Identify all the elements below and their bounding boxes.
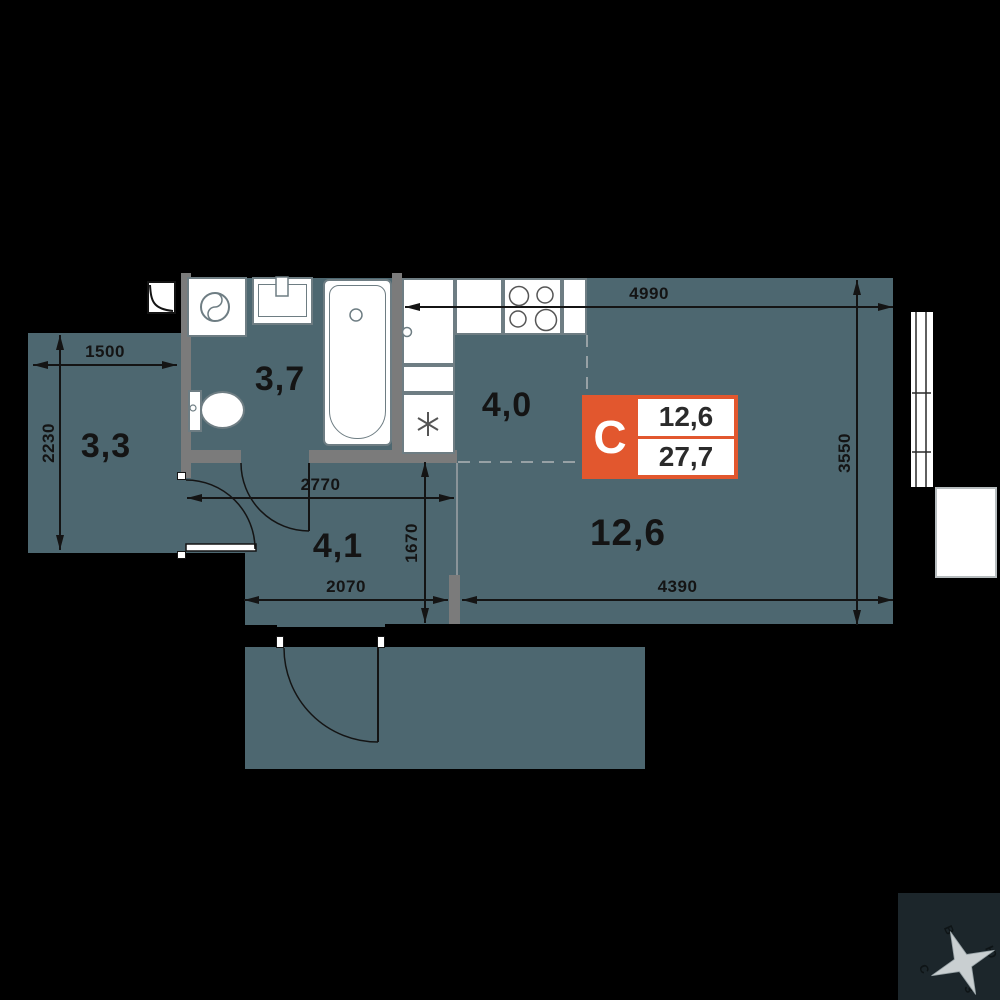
arrow-icon <box>878 303 893 311</box>
arrow-icon <box>462 596 477 604</box>
arrow-icon <box>56 335 64 350</box>
room-label-bathroom: 3,7 <box>240 360 320 399</box>
dim-bottom-left: 2070 <box>244 577 448 597</box>
dim-line-loggia-height <box>59 335 61 550</box>
dim-loggia-height: 2230 <box>39 403 59 483</box>
wall-right-lower <box>893 487 933 647</box>
arrow-icon <box>187 494 202 502</box>
partition-bath-bottom-left <box>181 450 241 463</box>
wall-right-upper <box>893 258 933 312</box>
zone-line-vertical <box>456 463 458 575</box>
badge-values: 12,6 27,7 <box>638 399 734 475</box>
arrow-icon <box>439 494 454 502</box>
partition-bath-kitchen <box>392 273 402 463</box>
arrow-icon <box>878 596 893 604</box>
arrow-icon <box>421 462 429 477</box>
loggia-door-jamb-top <box>177 472 186 480</box>
floor-plan-canvas: 4990 3550 1500 2230 2770 1670 2070 4390 … <box>0 0 1000 1000</box>
toilet-bowl <box>200 391 245 429</box>
arrow-icon <box>853 280 861 295</box>
wall-right-mid <box>893 312 911 487</box>
wall-loggia-top <box>10 315 183 333</box>
wall-top <box>128 258 933 278</box>
balcony-box <box>935 487 997 578</box>
wall-hall-base <box>225 625 277 647</box>
arrow-icon <box>162 361 177 369</box>
kitchen-counter-cell <box>402 365 455 393</box>
wall-bottom <box>385 624 933 647</box>
arrow-icon <box>421 608 429 623</box>
appliance-box <box>402 393 455 454</box>
dim-hall-height: 1670 <box>402 503 422 583</box>
sink-basin <box>258 284 307 317</box>
dim-top: 4990 <box>405 284 893 304</box>
badge-total-area: 27,7 <box>638 439 734 476</box>
arrow-icon <box>853 610 861 625</box>
room-label-hall: 4,1 <box>298 527 378 566</box>
dim-line-bottom-right <box>462 599 893 601</box>
dim-right: 3550 <box>835 413 855 493</box>
loggia-door-jamb-bottom <box>177 551 186 559</box>
wall-loggia-left <box>10 315 28 578</box>
dim-line-top <box>405 306 893 308</box>
dim-line-loggia-width <box>33 364 177 366</box>
badge-type-letter: С <box>586 399 634 475</box>
room-label-loggia: 3,3 <box>66 427 146 466</box>
arrow-icon <box>433 596 448 604</box>
washing-machine-icon <box>187 277 247 337</box>
dim-hall-width: 2770 <box>187 475 454 495</box>
arrow-icon <box>405 303 420 311</box>
dim-line-right <box>856 280 858 625</box>
dim-loggia-width: 1500 <box>33 342 177 362</box>
dim-line-hall-width <box>187 497 454 499</box>
arrow-icon <box>33 361 48 369</box>
kitchen-zone-dashed-horizontal <box>458 461 580 463</box>
entry-door-jamb-left <box>276 636 284 648</box>
arrow-icon <box>244 596 259 604</box>
bathtub-inner <box>329 285 386 439</box>
window-glazing <box>911 312 933 487</box>
badge-living-area: 12,6 <box>638 399 734 436</box>
entry-door-jamb-right <box>377 636 385 648</box>
dim-line-bottom-left <box>244 599 448 601</box>
apartment-badge: С 12,6 27,7 <box>582 395 738 479</box>
floor-entry-patch <box>245 647 645 769</box>
partition-stub <box>449 575 460 624</box>
wall-hall-left <box>225 573 245 627</box>
room-label-living: 12,6 <box>568 512 688 554</box>
room-label-kitchen: 4,0 <box>467 386 547 425</box>
wall-loggia-bottom <box>10 553 245 578</box>
dim-bottom-right: 4390 <box>462 577 893 597</box>
shaft-icon <box>147 281 176 314</box>
arrow-icon <box>56 535 64 550</box>
